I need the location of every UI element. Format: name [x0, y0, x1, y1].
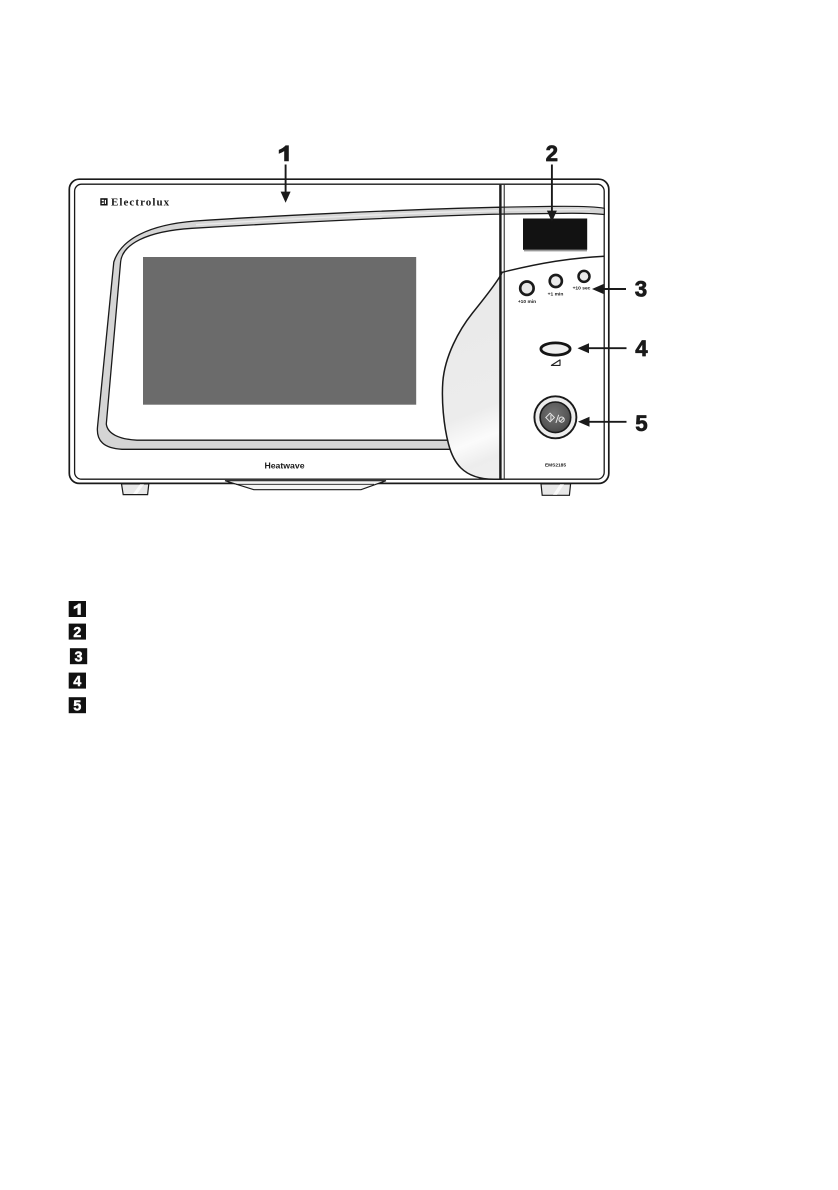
- svg-text:5: 5: [73, 698, 81, 714]
- svg-text:2: 2: [73, 625, 81, 641]
- svg-text:4: 4: [635, 336, 648, 361]
- svg-text:+1 min: +1 min: [548, 291, 564, 297]
- svg-text:+10 min: +10 min: [518, 299, 536, 305]
- svg-text:4: 4: [73, 674, 81, 690]
- svg-text:3: 3: [74, 649, 82, 665]
- svg-text:3: 3: [635, 277, 647, 302]
- svg-text:Electrolux: Electrolux: [111, 197, 170, 209]
- svg-text:Heatwave: Heatwave: [264, 460, 304, 470]
- svg-text:2: 2: [546, 141, 558, 166]
- svg-text:+10 sec: +10 sec: [573, 286, 591, 292]
- svg-text:5: 5: [635, 411, 647, 436]
- svg-text:EMS2185: EMS2185: [545, 463, 566, 469]
